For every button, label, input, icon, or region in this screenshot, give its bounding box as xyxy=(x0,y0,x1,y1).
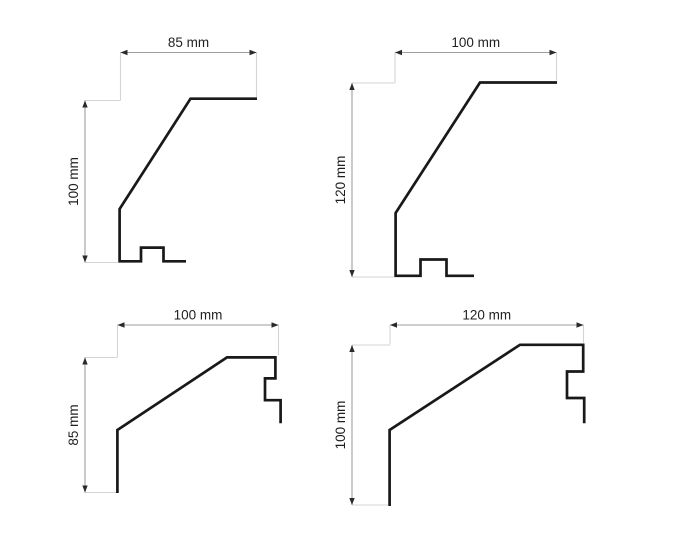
bottom-left-profile: 100 mm85 mm xyxy=(66,308,281,494)
profile-outline xyxy=(390,345,585,506)
width-dim-label: 100 mm xyxy=(451,35,500,50)
dim-arrow-right-icon xyxy=(577,322,584,327)
width-dim-label: 120 mm xyxy=(462,308,511,323)
height-dim-label: 85 mm xyxy=(66,404,81,445)
dim-arrow-down-icon xyxy=(82,486,87,493)
top-left-profile: 85 mm100 mm xyxy=(66,35,257,263)
dim-arrow-up-icon xyxy=(349,83,354,90)
width-dim-label: 100 mm xyxy=(174,308,223,323)
profile-outline xyxy=(120,99,257,262)
dim-arrow-up-icon xyxy=(82,358,87,365)
height-dim-label: 120 mm xyxy=(333,156,348,205)
dim-arrow-left-icon xyxy=(395,50,402,55)
dim-arrow-left-icon xyxy=(390,322,397,327)
dim-arrow-left-icon xyxy=(121,50,128,55)
dim-arrow-up-icon xyxy=(349,345,354,352)
dim-arrow-right-icon xyxy=(272,322,279,327)
profile-outline xyxy=(117,357,280,493)
height-dim-label: 100 mm xyxy=(333,401,348,450)
bottom-right-profile: 120 mm100 mm xyxy=(333,308,584,507)
dim-arrow-right-icon xyxy=(250,50,257,55)
dim-arrow-up-icon xyxy=(82,101,87,108)
height-dim-label: 100 mm xyxy=(66,157,81,206)
diagram-canvas: 85 mm100 mm100 mm120 mm100 mm85 mm120 mm… xyxy=(0,0,675,540)
dim-arrow-right-icon xyxy=(550,50,557,55)
dim-arrow-down-icon xyxy=(349,270,354,277)
width-dim-label: 85 mm xyxy=(168,35,209,50)
profile-outline xyxy=(396,83,557,276)
dim-arrow-down-icon xyxy=(349,498,354,505)
top-right-profile: 100 mm120 mm xyxy=(333,35,557,277)
dim-arrow-left-icon xyxy=(118,322,125,327)
dim-arrow-down-icon xyxy=(82,256,87,263)
profiles-page: 85 mm100 mm100 mm120 mm100 mm85 mm120 mm… xyxy=(0,0,675,540)
